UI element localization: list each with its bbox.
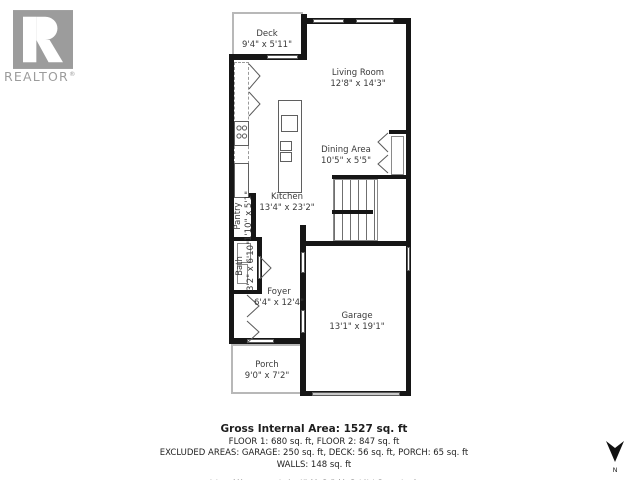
door-swing-icon bbox=[248, 63, 261, 90]
garage-door bbox=[312, 392, 400, 396]
room-name: Kitchen bbox=[259, 192, 314, 203]
room-label-porch: Porch 9'0" x 7'2" bbox=[245, 360, 290, 382]
realtor-word: REALTOR bbox=[4, 69, 69, 84]
closet-door-icon bbox=[377, 132, 389, 153]
realtor-block-r-icon bbox=[13, 10, 73, 69]
room-label-deck: Deck 9'4" x 5'11" bbox=[242, 29, 292, 51]
room-label-foyer: Foyer 6'4" x 12'4" bbox=[254, 287, 304, 309]
stove-icon bbox=[234, 121, 249, 146]
north-indicator: N bbox=[604, 439, 626, 474]
room-name: Pantry bbox=[233, 191, 244, 241]
north-arrow-icon bbox=[604, 439, 626, 463]
wall-segment bbox=[406, 18, 411, 396]
cooktop bbox=[280, 141, 292, 151]
room-label-pantry: Pantry 1'10" x 5'1" bbox=[233, 191, 255, 241]
sink bbox=[281, 115, 298, 132]
room-label-dining-area: Dining Area 10'5" x 5'5" bbox=[321, 145, 371, 167]
room-dims: 13'1" x 19'1" bbox=[329, 322, 384, 333]
room-dims: 1'10" x 5'1" bbox=[244, 191, 255, 241]
wall-segment bbox=[389, 130, 406, 134]
realtor-logo-wordmark: REALTOR® bbox=[4, 69, 84, 84]
room-dims: 9'4" x 5'11" bbox=[242, 40, 292, 51]
room-name: Garage bbox=[329, 311, 384, 322]
room-name: Bath bbox=[235, 241, 246, 291]
room-dims: 13'4" x 23'2" bbox=[259, 203, 314, 214]
room-dims: 3'2" x 6'10" bbox=[246, 241, 257, 291]
closet-door-icon bbox=[377, 154, 389, 174]
room-dims: 6'4" x 12'4" bbox=[254, 298, 304, 309]
closet bbox=[391, 136, 404, 175]
floorplan-page: REALTOR® bbox=[0, 0, 640, 480]
room-label-bath: Bath 3'2" x 6'10" bbox=[235, 241, 257, 291]
window bbox=[267, 55, 298, 59]
room-label-garage: Garage 13'1" x 19'1" bbox=[329, 311, 384, 333]
room-name: Dining Area bbox=[321, 145, 371, 156]
room-dims: 12'8" x 14'3" bbox=[330, 79, 385, 90]
room-name: Deck bbox=[242, 29, 292, 40]
stair-rail bbox=[332, 210, 373, 214]
window bbox=[313, 19, 344, 23]
door-opening bbox=[301, 252, 305, 273]
floor-areas: FLOOR 1: 680 sq. ft, FLOOR 2: 847 sq. ft bbox=[160, 437, 468, 448]
room-name: Porch bbox=[245, 360, 290, 371]
window bbox=[407, 247, 410, 271]
cooktop bbox=[280, 152, 292, 162]
door-swing-icon bbox=[248, 91, 261, 117]
room-label-living-room: Living Room 12'8" x 14'3" bbox=[330, 68, 385, 90]
door-swing-icon bbox=[260, 257, 272, 279]
wall-segment bbox=[300, 241, 411, 246]
room-name: Foyer bbox=[254, 287, 304, 298]
door-swing-icon bbox=[246, 320, 260, 344]
stove-burners-icon bbox=[235, 122, 248, 145]
realtor-logo-icon bbox=[13, 10, 73, 73]
door-opening bbox=[301, 310, 305, 333]
room-dims: 10'5" x 5'5" bbox=[321, 156, 371, 167]
room-dims: 9'0" x 7'2" bbox=[245, 371, 290, 382]
excluded-areas: EXCLUDED AREAS: GARAGE: 250 sq. ft, DECK… bbox=[160, 448, 468, 459]
north-label: N bbox=[604, 467, 626, 474]
registered-mark: ® bbox=[69, 70, 76, 78]
window bbox=[356, 19, 394, 23]
room-label-kitchen: Kitchen 13'4" x 23'2" bbox=[259, 192, 314, 214]
gross-internal-area: Gross Internal Area: 1527 sq. ft bbox=[160, 423, 468, 435]
kitchen-counter bbox=[234, 62, 249, 164]
room-name: Living Room bbox=[330, 68, 385, 79]
area-summary: Gross Internal Area: 1527 sq. ft FLOOR 1… bbox=[160, 423, 468, 480]
walls-area: WALLS: 148 sq. ft bbox=[160, 460, 468, 471]
